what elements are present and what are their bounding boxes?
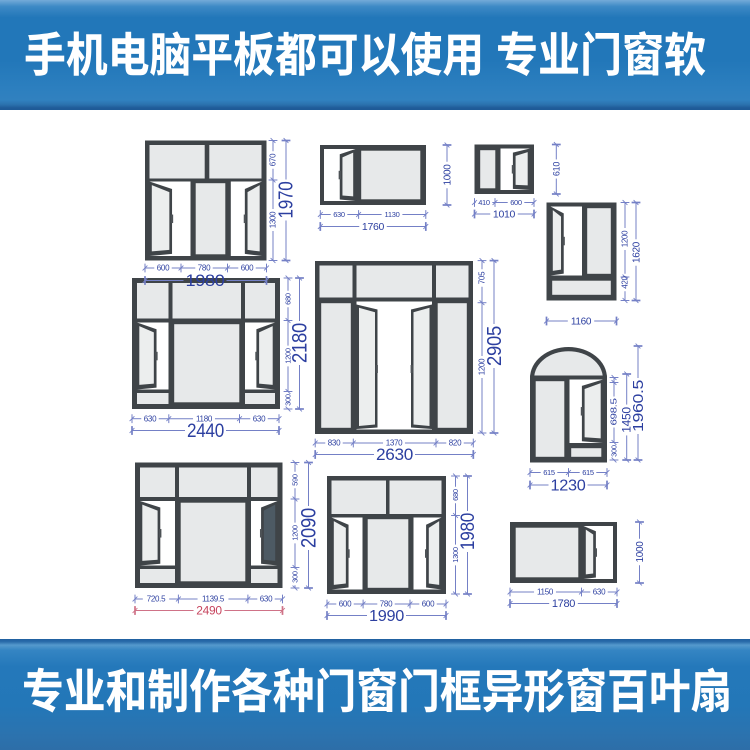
svg-text:590: 590 [290, 474, 299, 486]
svg-text:630: 630 [593, 588, 606, 597]
svg-text:300: 300 [290, 571, 299, 583]
svg-text:1139.5: 1139.5 [202, 595, 225, 604]
svg-text:705: 705 [478, 271, 487, 284]
svg-text:1000: 1000 [442, 164, 453, 186]
svg-text:670: 670 [269, 153, 278, 166]
svg-text:698.5: 698.5 [610, 397, 619, 425]
svg-text:1960.5: 1960.5 [631, 380, 647, 432]
svg-text:1760: 1760 [362, 221, 385, 233]
svg-text:1010: 1010 [493, 208, 516, 220]
svg-text:1160: 1160 [571, 316, 592, 327]
svg-text:600: 600 [241, 264, 254, 273]
svg-text:680: 680 [283, 293, 292, 305]
svg-text:300: 300 [609, 445, 618, 457]
svg-text:2905: 2905 [483, 326, 506, 366]
svg-text:1000: 1000 [635, 541, 646, 563]
svg-text:2180: 2180 [288, 323, 311, 363]
svg-text:2090: 2090 [297, 508, 320, 548]
svg-text:1200: 1200 [621, 230, 630, 247]
svg-text:1620: 1620 [631, 241, 642, 263]
svg-text:2490: 2490 [196, 603, 222, 617]
svg-text:615: 615 [582, 468, 594, 477]
svg-text:1230: 1230 [551, 477, 586, 494]
svg-text:1130: 1130 [385, 210, 400, 219]
svg-text:600: 600 [510, 198, 522, 207]
svg-text:680: 680 [451, 489, 460, 501]
svg-text:630: 630 [253, 414, 266, 423]
svg-text:1980: 1980 [186, 272, 225, 290]
svg-text:1150: 1150 [537, 588, 554, 597]
svg-text:600: 600 [339, 600, 352, 609]
svg-text:2440: 2440 [187, 421, 224, 442]
svg-text:610: 610 [551, 162, 561, 176]
svg-text:600: 600 [157, 264, 170, 273]
svg-text:600: 600 [422, 600, 435, 609]
svg-text:615: 615 [543, 468, 555, 477]
svg-text:630: 630 [260, 595, 273, 604]
svg-text:820: 820 [449, 439, 462, 448]
svg-text:1970: 1970 [276, 181, 298, 218]
svg-text:2630: 2630 [376, 446, 413, 464]
svg-text:1780: 1780 [552, 598, 575, 610]
svg-text:300: 300 [283, 394, 292, 406]
svg-text:630: 630 [333, 210, 345, 219]
svg-text:630: 630 [144, 414, 157, 423]
svg-text:410: 410 [478, 198, 490, 207]
svg-text:720.5: 720.5 [147, 595, 166, 604]
svg-text:1980: 1980 [458, 513, 479, 550]
svg-text:830: 830 [328, 439, 341, 448]
svg-text:1990: 1990 [369, 608, 404, 625]
svg-text:420: 420 [621, 275, 630, 288]
